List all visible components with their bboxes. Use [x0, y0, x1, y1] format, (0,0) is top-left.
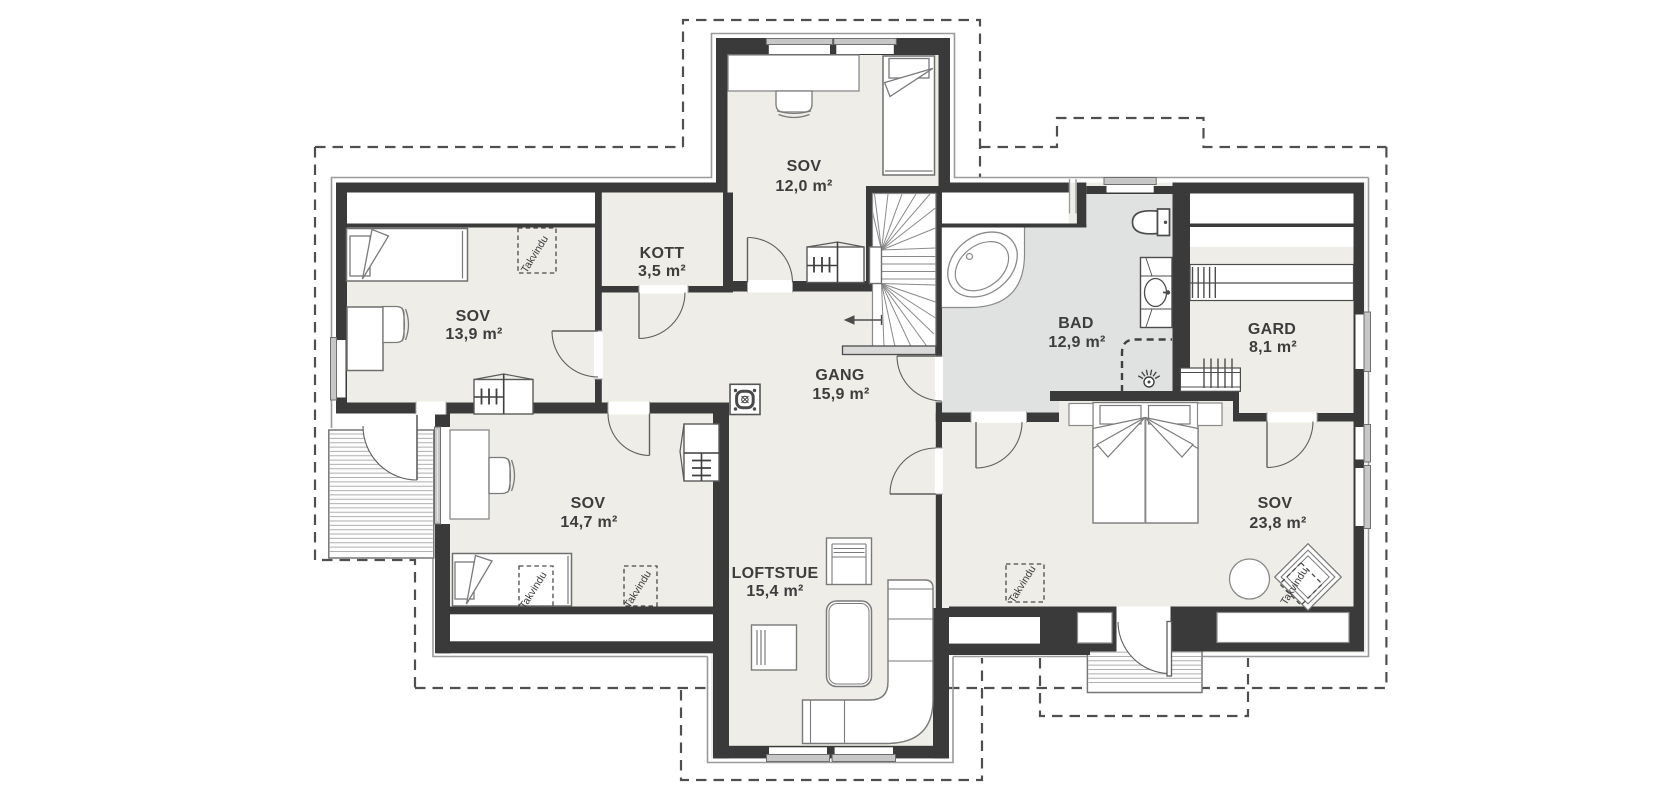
svg-text:SOV: SOV: [787, 158, 822, 175]
svg-text:GANG: GANG: [815, 367, 864, 384]
svg-text:LOFTSTUE: LOFTSTUE: [732, 565, 819, 582]
svg-text:SOV: SOV: [456, 308, 491, 325]
svg-text:KOTT: KOTT: [640, 245, 685, 262]
svg-text:15,9 m²: 15,9 m²: [812, 386, 869, 403]
svg-text:8,1 m²: 8,1 m²: [1249, 339, 1297, 356]
svg-text:3,5 m²: 3,5 m²: [638, 263, 686, 280]
svg-text:12,9 m²: 12,9 m²: [1048, 334, 1105, 351]
svg-text:BAD: BAD: [1058, 315, 1094, 332]
svg-text:SOV: SOV: [571, 495, 606, 512]
svg-text:SOV: SOV: [1258, 495, 1293, 512]
svg-text:GARD: GARD: [1248, 321, 1296, 338]
svg-text:23,8 m²: 23,8 m²: [1249, 515, 1306, 532]
svg-text:13,9 m²: 13,9 m²: [445, 326, 502, 343]
svg-text:14,7 m²: 14,7 m²: [560, 514, 617, 531]
svg-text:12,0 m²: 12,0 m²: [775, 178, 832, 195]
svg-text:15,4 m²: 15,4 m²: [746, 583, 803, 600]
